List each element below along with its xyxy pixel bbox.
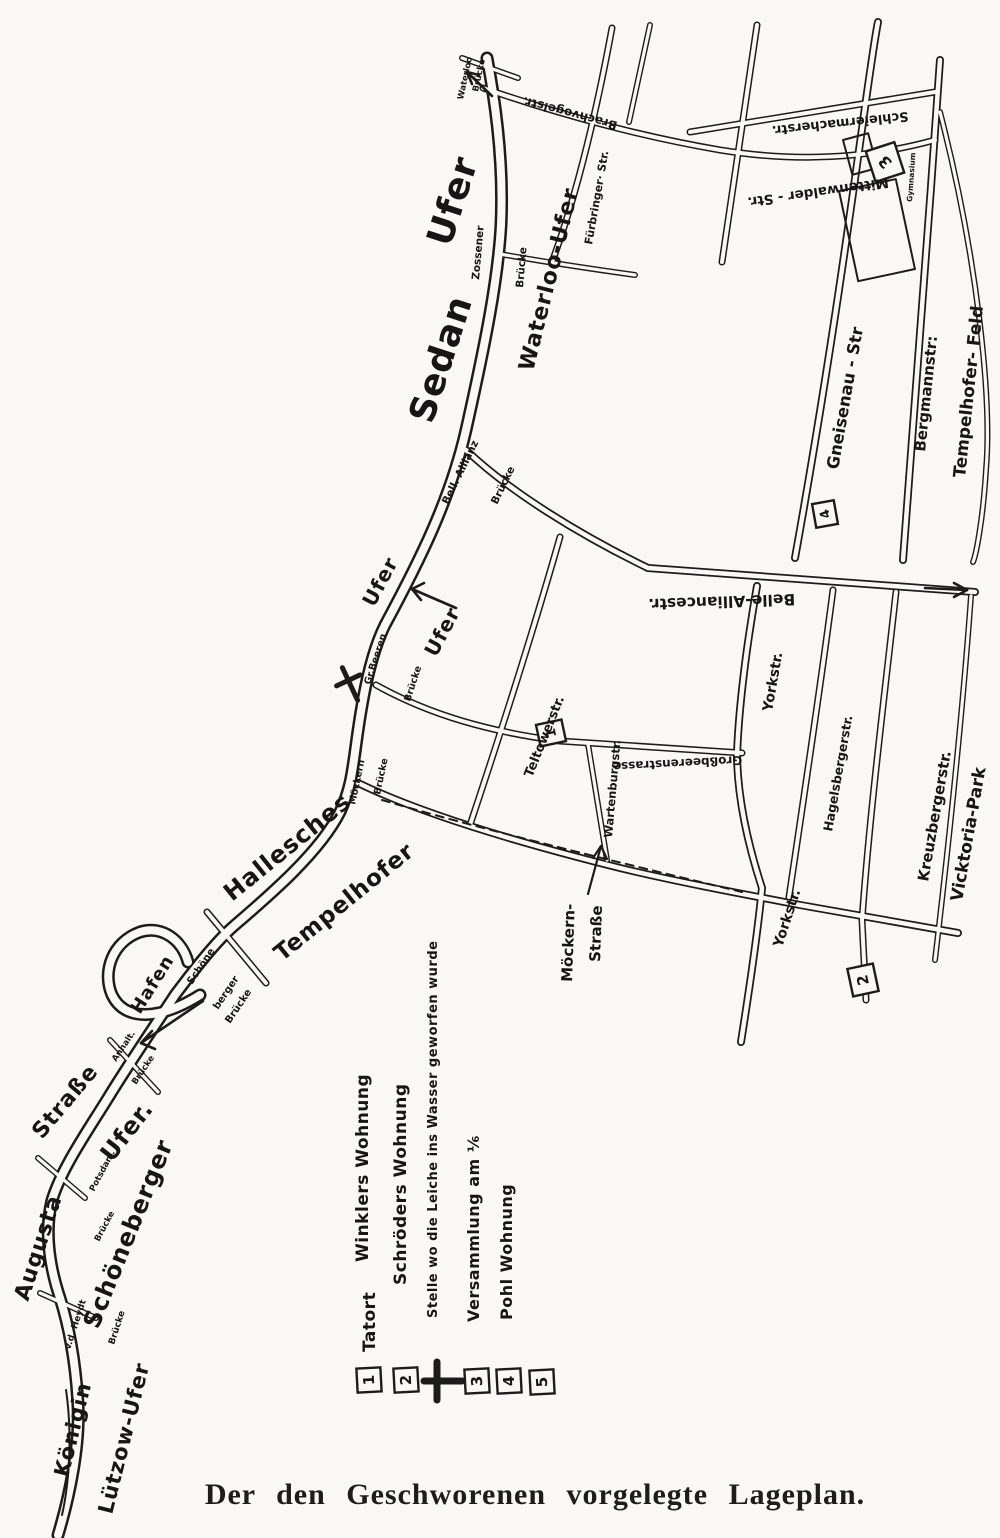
label-brachvogelstr: Brachvogelstr.	[521, 94, 619, 133]
legend-2-number: 2	[397, 1374, 416, 1385]
legend-1-label-line1: Tatort	[360, 1292, 380, 1352]
label-koenigin: Königin	[50, 1380, 97, 1480]
legend-1-label-line2: Winklers Wohnung	[353, 1074, 373, 1262]
flow-arrow-bend	[412, 583, 456, 608]
label-mittenwalder-str: Mittenwalder - Str.	[746, 174, 889, 210]
legend-4-label: Pohl Wohnung	[497, 1184, 516, 1320]
lageplan-map: 1 2 3 4 Sedan Ufer Waterloo-Ufer Ufer Uf…	[0, 0, 1000, 1538]
label-tempelhofer-feld: Tempelhofer- Feld	[950, 305, 988, 479]
legend-cross-label: Stelle wo die Leiche ins Wasser geworfen…	[426, 941, 441, 1318]
legend-2-label: Schröders Wohnung	[391, 1083, 411, 1285]
label-yorkstr-upper: Yorkstr.	[760, 651, 786, 714]
label-zossener-bruecke: Brücke	[514, 247, 530, 289]
moeckernstrasse-pointer-arrow	[588, 846, 607, 894]
marker-box-2: 2	[847, 964, 878, 997]
legend-3-label: Versammlung am ⅙	[464, 1135, 483, 1322]
label-zossener: Zossener	[470, 224, 487, 280]
legend-3-number: 3	[468, 1375, 487, 1386]
label-belle-alliancestr: Belle-Alliancestr.	[648, 590, 796, 613]
label-gr-beeren-bruecke: Brücke	[402, 665, 424, 703]
label-moeckern-bruecke: Brücke	[372, 757, 390, 795]
label-schoeneberger-big: Schöneberger	[78, 1135, 179, 1332]
legend-1-number: 1	[360, 1374, 379, 1385]
marker-box-4: 4	[812, 500, 838, 527]
label-moeckernstrasse-1: Möckern-	[558, 903, 579, 982]
legend: 1 2 3 4 5 Tatort Winklers Wohnung Schröd…	[353, 941, 555, 1400]
legend-symbol-5: 5	[529, 1369, 554, 1394]
legend-5-number: 5	[533, 1376, 552, 1387]
label-hallesches: Hallesches	[218, 787, 356, 906]
legend-symbol-2: 2	[393, 1367, 418, 1392]
map-caption: Der den Geschworenen vorgelegte Lageplan…	[70, 1478, 1000, 1512]
legend-symbol-3: 3	[464, 1368, 489, 1393]
legend-4-number: 4	[500, 1375, 519, 1386]
label-fuerbringer-str: Fürbringer· Str.	[582, 150, 611, 246]
legend-cross-icon	[424, 1362, 462, 1400]
label-grossbeerenstrasse: Großbeerenstrasse	[613, 753, 743, 774]
label-hagelsbergerstr: Hagelsbergerstr.	[820, 714, 855, 833]
label-gymnasium: Gymnasium	[905, 152, 917, 202]
label-wartenburgstr: Wartenburgstr.	[601, 739, 624, 838]
label-moeckernstrasse-2: Straße	[586, 905, 606, 962]
label-ufer-bend-right: Ufer	[419, 603, 465, 661]
legend-symbol-4: 4	[496, 1368, 521, 1393]
legend-symbol-1: 1	[356, 1367, 381, 1392]
